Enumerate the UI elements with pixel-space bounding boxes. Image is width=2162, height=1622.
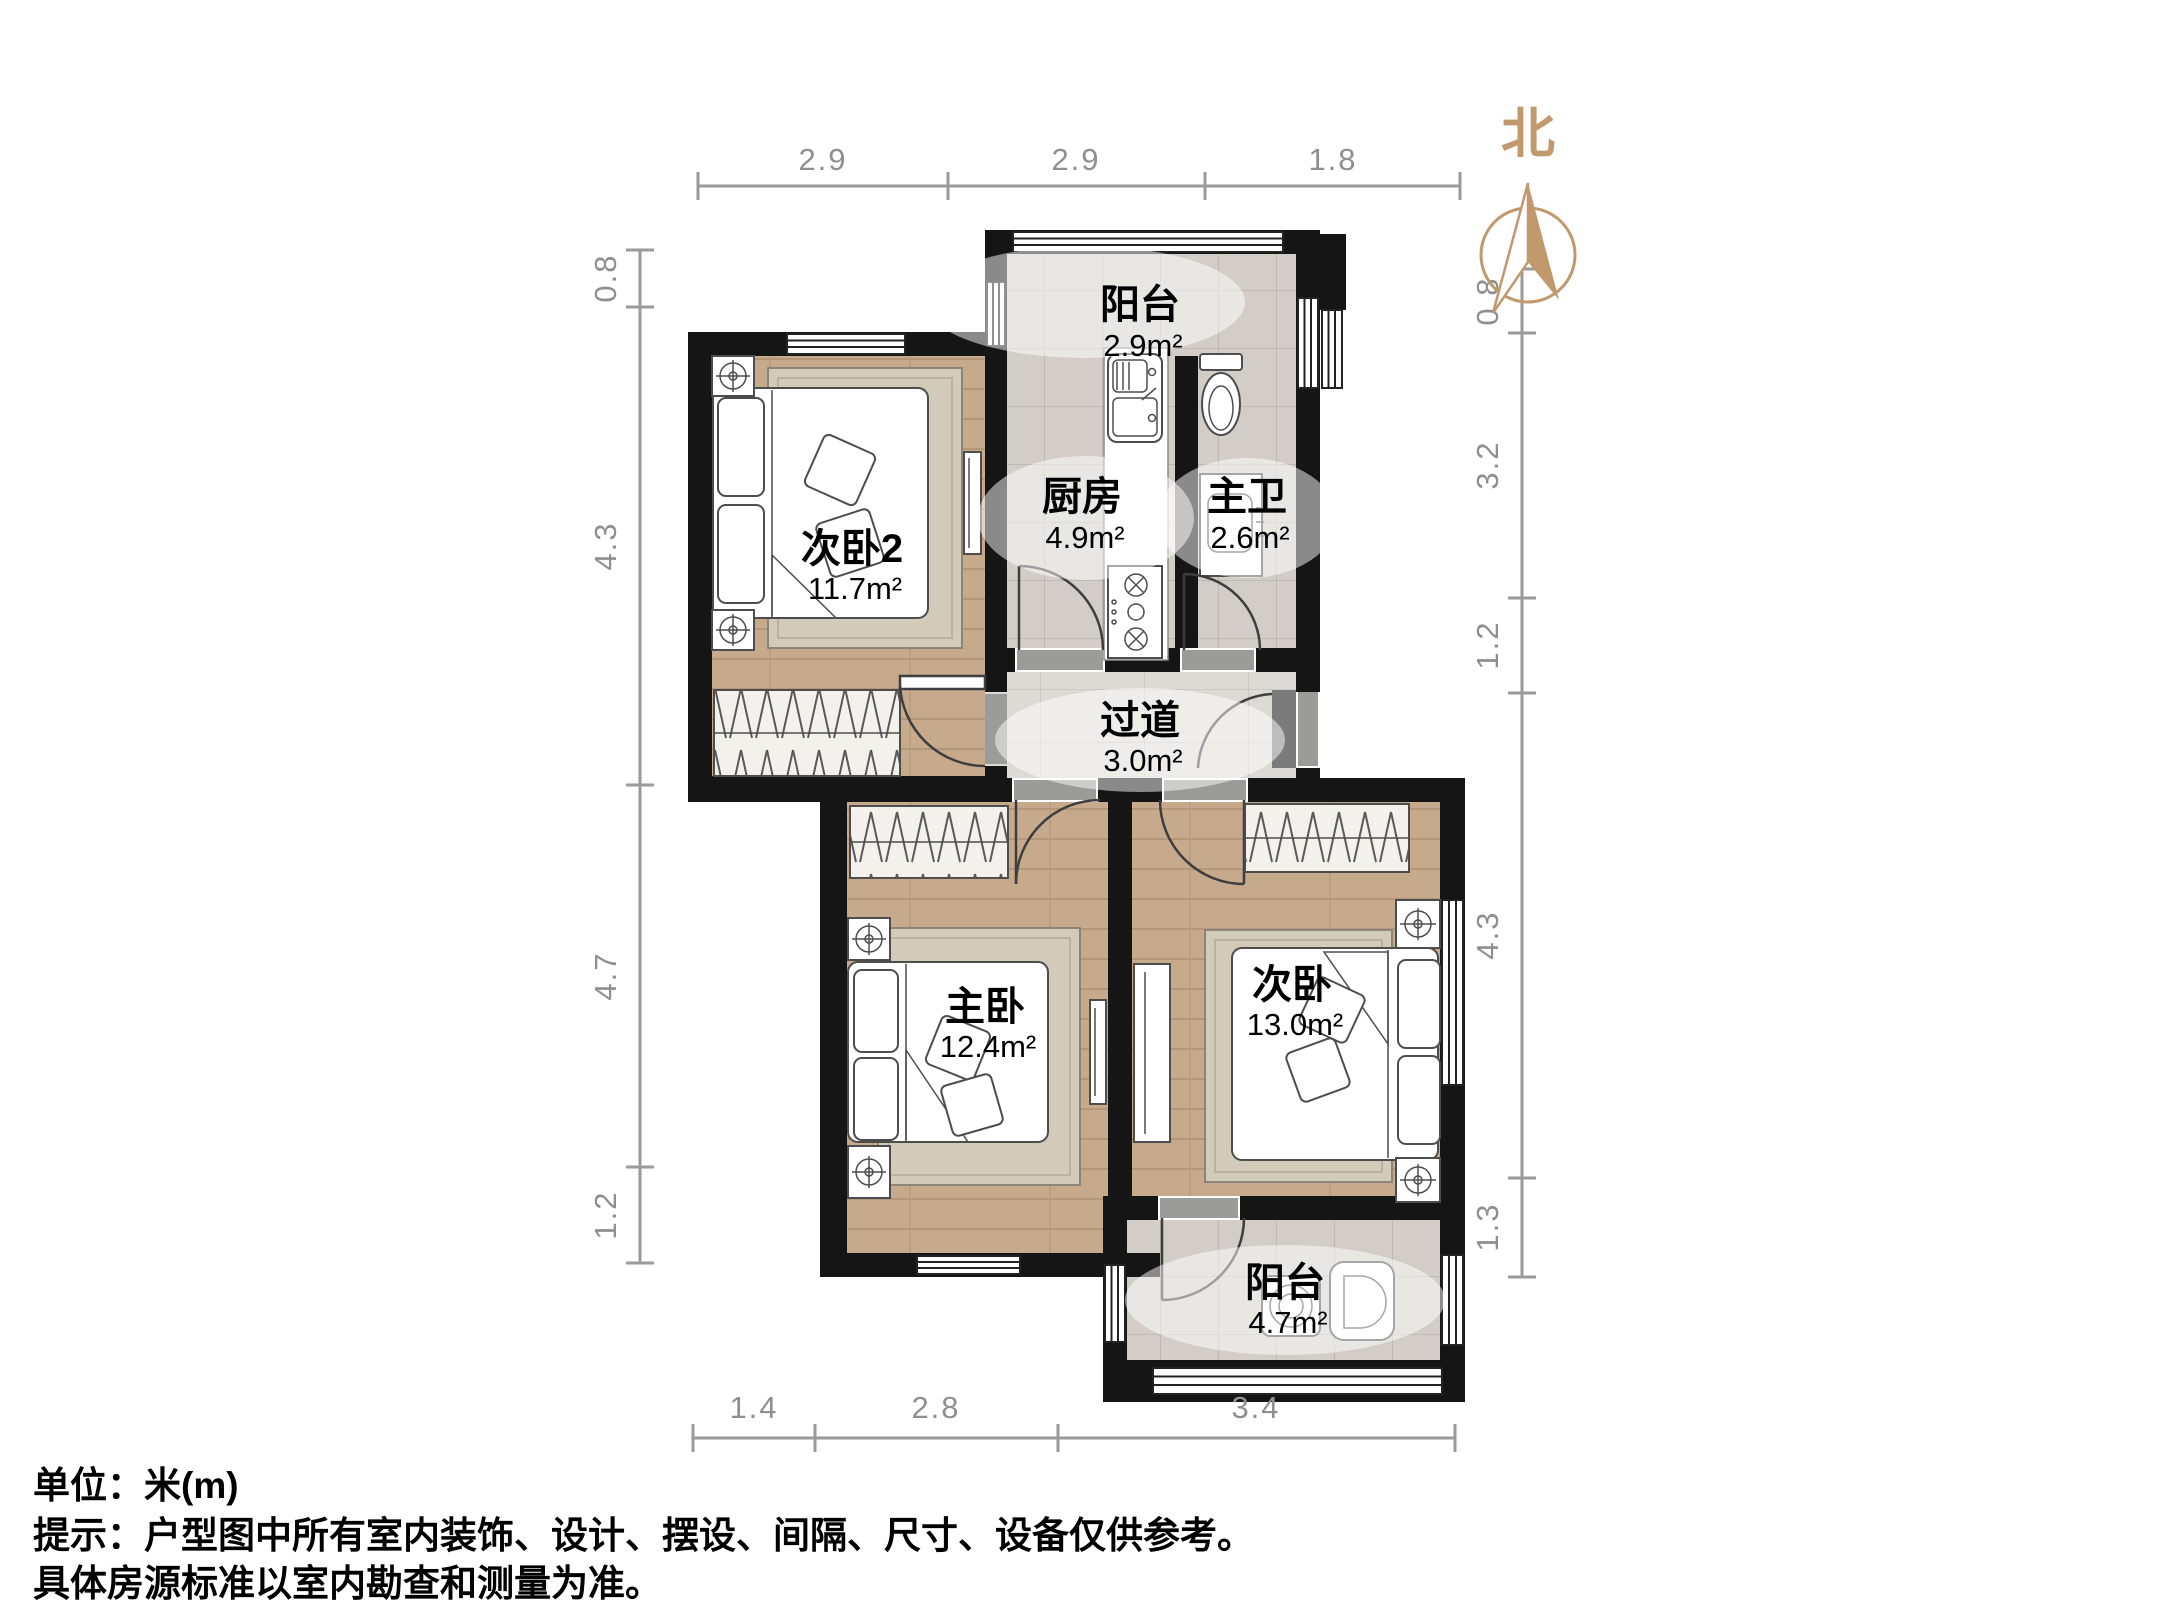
wardrobe-icon <box>714 690 900 776</box>
dim-top-3: 1.8 <box>1308 142 1357 177</box>
dimension-left: 0.8 4.3 4.7 1.2 <box>588 250 654 1263</box>
floor-plan: 阳台 2.9m² 厨房 4.9m² 主卫 2.6m² 次卧2 11.7m² 过道… <box>0 0 2162 1622</box>
room-name-balcony-bottom: 阳台 <box>1245 1261 1325 1305</box>
room-name-balcony-top: 阳台 <box>1100 283 1180 327</box>
dim-top-2: 2.9 <box>1051 142 1100 177</box>
dim-right-2: 3.2 <box>1470 440 1505 489</box>
dim-left-3: 4.7 <box>588 951 623 1000</box>
unit-note: 单位：米(m) <box>33 1465 239 1506</box>
dim-bottom-2: 2.8 <box>911 1390 960 1425</box>
dim-right-3: 1.2 <box>1470 620 1505 669</box>
nightstand-icon <box>1396 900 1440 948</box>
room-area-master: 12.4m² <box>940 1029 1036 1064</box>
disclaimer-line2: 具体房源标准以室内勘查和测量为准。 <box>33 1562 662 1604</box>
dim-bottom-1: 1.4 <box>729 1390 778 1425</box>
wardrobe-icon <box>850 806 1008 878</box>
room-area-kitchen: 4.9m² <box>1045 520 1124 555</box>
nightstand-icon <box>848 918 890 960</box>
wardrobe-icon <box>1245 804 1409 872</box>
balcony-bottom-window <box>1153 1368 1442 1394</box>
sink-icon <box>1108 354 1162 442</box>
room-name-bedroom2: 次卧2 <box>801 527 903 571</box>
room-name-bedroom: 次卧 <box>1252 963 1332 1007</box>
room-area-bedroom: 13.0m² <box>1247 1007 1343 1042</box>
dresser-icon <box>1134 964 1170 1142</box>
room-name-kitchen: 厨房 <box>1042 475 1122 519</box>
nightstand-icon <box>712 610 754 650</box>
room-area-bedroom2: 11.7m² <box>808 571 902 606</box>
nightstand-icon <box>848 1146 890 1198</box>
balcony-left-window <box>1105 1265 1125 1342</box>
dim-right-4: 4.3 <box>1470 910 1505 959</box>
toilet-icon <box>1200 354 1242 435</box>
bedroom-right-window <box>1442 900 1463 1085</box>
dim-right-5: 1.3 <box>1470 1202 1505 1251</box>
tv-icon <box>964 452 981 554</box>
nightstand-icon <box>1396 1158 1440 1202</box>
dimension-right: 0.8 3.2 1.2 4.3 1.3 <box>1470 269 1536 1277</box>
room-area-hallway: 3.0m² <box>1103 743 1182 778</box>
balcony-right-window <box>1442 1255 1463 1345</box>
room-area-balcony-bottom: 4.7m² <box>1248 1305 1327 1340</box>
dim-bottom-3: 3.4 <box>1231 1390 1280 1425</box>
room-name-master: 主卧 <box>945 985 1025 1029</box>
bath-right-window <box>1298 298 1318 388</box>
dim-left-4: 1.2 <box>588 1190 623 1239</box>
room-area-balcony-top: 2.9m² <box>1103 328 1182 363</box>
bedroom2-window <box>787 334 905 354</box>
master-bottom-window <box>917 1256 1020 1274</box>
nightstand-icon <box>712 356 754 396</box>
tv-icon <box>1090 1000 1106 1104</box>
compass-north-label: 北 <box>1501 104 1555 164</box>
disclaimer-line1: 提示：户型图中所有室内装饰、设计、摆设、间隔、尺寸、设备仅供参考。 <box>33 1514 1254 1556</box>
notes: 单位：米(m) 提示：户型图中所有室内装饰、设计、摆设、间隔、尺寸、设备仅供参考… <box>33 1465 1254 1604</box>
dim-top-1: 2.9 <box>798 142 847 177</box>
room-name-hallway: 过道 <box>1100 699 1180 743</box>
room-area-bath: 2.6m² <box>1210 520 1289 555</box>
dim-left-1: 0.8 <box>588 253 623 302</box>
room-name-bath: 主卫 <box>1207 475 1287 519</box>
right-stub-window <box>1322 310 1342 388</box>
stove-icon <box>1108 566 1162 658</box>
dim-left-2: 4.3 <box>588 521 623 570</box>
dimension-top: 2.9 2.9 1.8 <box>698 142 1460 200</box>
